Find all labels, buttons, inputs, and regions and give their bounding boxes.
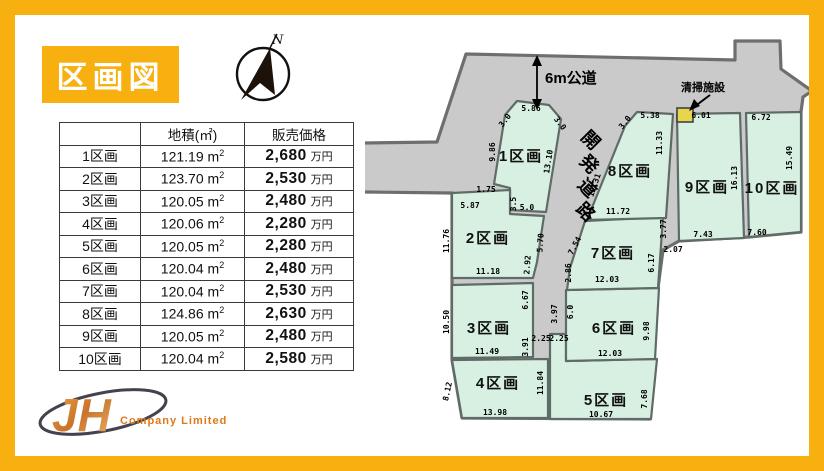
dim-label: 5.0 xyxy=(520,203,535,212)
plot-price: 2,280 万円 xyxy=(245,235,354,258)
plot-label: 3区画 xyxy=(60,190,141,213)
dim-label: 12.03 xyxy=(598,349,622,358)
plot-price: 2,530 万円 xyxy=(245,280,354,303)
dim-label: 6.67 xyxy=(521,290,530,309)
dim-label: 3.77 xyxy=(659,219,668,238)
dim-label: 3.91 xyxy=(521,337,530,356)
dim-label: 9.98 xyxy=(642,321,651,340)
dim-label: 2.25 xyxy=(531,334,550,343)
plot-9-label: 9区画 xyxy=(685,179,729,196)
dim-label: 5.87 xyxy=(460,201,479,210)
dim-label: 2.92 xyxy=(522,255,532,275)
plot-price: 2,580 万円 xyxy=(245,348,354,371)
dim-label: 16.13 xyxy=(730,166,739,190)
public-road-label: 6m公道 xyxy=(545,69,597,87)
plot-area: 120.04 m2 xyxy=(141,258,245,281)
plot-price: 2,480 万円 xyxy=(245,258,354,281)
plot-label: 4区画 xyxy=(60,213,141,236)
flyer-page: 6m公道 清掃施設 開発道路 1区画 2区画 3区画 4区画 5区画 6区画 7… xyxy=(0,0,824,471)
plot-5-label: 5区画 xyxy=(584,392,628,409)
table-row: 1区画 121.19 m2 2,680 万円 xyxy=(60,145,354,168)
table-row: 4区画 120.06 m2 2,280 万円 xyxy=(60,213,354,236)
plot-price: 2,680 万円 xyxy=(245,145,354,168)
page-title: 区画図 xyxy=(42,46,179,103)
dim-label: 11.72 xyxy=(606,207,630,216)
table-header-row: 地積(㎡) 販売価格 xyxy=(60,123,354,146)
plot-price: 2,480 万円 xyxy=(245,190,354,213)
logo-mark: JH xyxy=(52,389,112,441)
plot-price: 2,630 万円 xyxy=(245,303,354,326)
plot-area: 120.04 m2 xyxy=(141,280,245,303)
facility-label: 清掃施設 xyxy=(681,80,726,94)
table-row: 2区画 123.70 m2 2,530 万円 xyxy=(60,168,354,191)
dim-label: 3.5 xyxy=(509,197,518,212)
dim-label: 2.07 xyxy=(663,245,682,254)
plot-label: 8区画 xyxy=(60,303,141,326)
plot-price: 2,530 万円 xyxy=(245,168,354,191)
dim-label: 6.01 xyxy=(691,111,710,120)
plot-area: 123.70 m2 xyxy=(141,168,245,191)
table-row: 9区画 120.05 m2 2,480 万円 xyxy=(60,325,354,348)
plot-10-label: 10区画 xyxy=(745,180,800,197)
plot-area: 124.86 m2 xyxy=(141,303,245,326)
dim-label: 5.86 xyxy=(521,104,540,113)
table-row: 7区画 120.04 m2 2,530 万円 xyxy=(60,280,354,303)
plot-label: 6区画 xyxy=(60,258,141,281)
header-blank xyxy=(60,123,141,146)
plot-label: 10区画 xyxy=(60,348,141,371)
table-row: 10区画 120.04 m2 2,580 万円 xyxy=(60,348,354,371)
dim-label: 3.97 xyxy=(550,304,559,323)
dim-label: 9.86 xyxy=(488,142,497,161)
header-price: 販売価格 xyxy=(245,123,354,146)
dim-label: 1.75 xyxy=(476,185,495,194)
company-logo: JH Company Limited xyxy=(37,381,228,443)
dim-label: 13.98 xyxy=(483,408,507,417)
dim-label: 2.25 xyxy=(549,334,568,343)
dim-label: 11.76 xyxy=(442,229,451,253)
dim-label: 2.86 xyxy=(564,263,573,282)
plot-2-label: 2区画 xyxy=(466,230,510,247)
plot-8-label: 8区画 xyxy=(608,163,652,180)
dim-label: 10.67 xyxy=(589,410,613,419)
dim-label: 6.17 xyxy=(647,253,656,272)
plot-label: 7区画 xyxy=(60,280,141,303)
plot-label: 2区画 xyxy=(60,168,141,191)
dim-label: 11.33 xyxy=(655,131,664,155)
plot-price: 2,280 万円 xyxy=(245,213,354,236)
plot-price: 2,480 万円 xyxy=(245,325,354,348)
dim-label: 7.68 xyxy=(640,389,649,408)
plot-area: 121.19 m2 xyxy=(141,145,245,168)
dim-label: 11.49 xyxy=(475,347,499,356)
table-row: 8区画 124.86 m2 2,630 万円 xyxy=(60,303,354,326)
dim-label: 7.43 xyxy=(693,230,712,239)
dim-label: 6.72 xyxy=(751,113,770,122)
plot-6-label: 6区画 xyxy=(592,320,636,337)
table-row: 3区画 120.05 m2 2,480 万円 xyxy=(60,190,354,213)
plot-area: 120.05 m2 xyxy=(141,325,245,348)
dim-label: 6.0 xyxy=(566,305,575,320)
price-table: 地積(㎡) 販売価格 1区画 121.19 m2 2,680 万円 2区画 12… xyxy=(59,122,354,371)
header-area: 地積(㎡) xyxy=(141,123,245,146)
plot-4-label: 4区画 xyxy=(476,375,520,392)
plot-area: 120.04 m2 xyxy=(141,348,245,371)
plot-1-label: 1区画 xyxy=(499,148,543,165)
dim-label: 11.18 xyxy=(476,267,500,276)
dim-label: 12.03 xyxy=(595,275,619,284)
compass-n-label: N xyxy=(271,33,284,48)
plot-area: 120.06 m2 xyxy=(141,213,245,236)
dim-label: 10.50 xyxy=(442,310,451,334)
dim-label: 15.49 xyxy=(785,146,794,170)
plot-area: 120.05 m2 xyxy=(141,235,245,258)
plot-10-area xyxy=(746,112,801,237)
dim-label: 5.70 xyxy=(535,233,545,253)
plot-label: 9区画 xyxy=(60,325,141,348)
plot-3-label: 3区画 xyxy=(467,320,511,337)
compass: N xyxy=(237,33,289,100)
table-row: 5区画 120.05 m2 2,280 万円 xyxy=(60,235,354,258)
dim-label: 5.38 xyxy=(640,111,659,120)
dim-label: 11.84 xyxy=(536,371,545,395)
plot-label: 5区画 xyxy=(60,235,141,258)
dim-label: 8.12 xyxy=(441,381,454,402)
plot-label: 1区画 xyxy=(60,145,141,168)
plot-7-label: 7区画 xyxy=(591,245,635,262)
logo-company-text: Company Limited xyxy=(120,415,227,427)
plot-area: 120.05 m2 xyxy=(141,190,245,213)
table-row: 6区画 120.04 m2 2,480 万円 xyxy=(60,258,354,281)
dim-label: 7.60 xyxy=(747,228,766,237)
page-title-text: 区画図 xyxy=(57,52,165,97)
